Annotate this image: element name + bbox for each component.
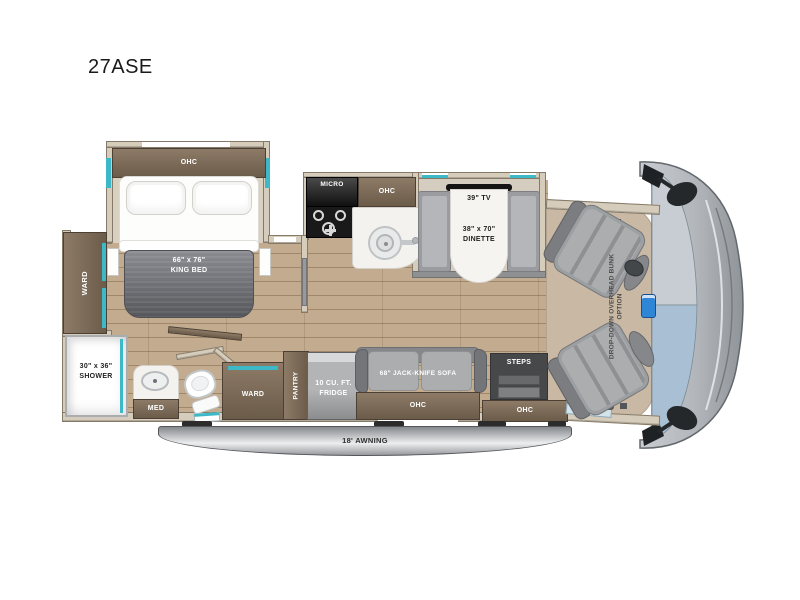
floorplan-canvas: OHC 66" x 76" KING BED WARD 30" x 36" SH…: [0, 0, 800, 600]
dinette-name-text: DINETTE: [463, 235, 495, 245]
nightstand-left: [107, 248, 119, 276]
entry-ward-label: WARD: [222, 390, 284, 400]
pantry-label: PANTRY: [284, 352, 308, 419]
galley-ohc-cabinet: OHC: [358, 177, 416, 207]
bed-type-text: KING BED: [171, 266, 208, 276]
sofa-label: 68" JACK-KNIFE SOFA: [360, 369, 476, 379]
fridge-line2-text: FRIDGE: [319, 389, 347, 399]
med-label: MED: [134, 400, 178, 418]
bed-size-text: 66" x 76": [173, 256, 206, 266]
ward-door-accent-1: [102, 243, 106, 281]
king-bed-label: 66" x 76" KING BED: [124, 254, 254, 278]
nightstand-right: [259, 248, 271, 276]
bench-left-cushion: [422, 196, 447, 267]
galley-sink-drain: [384, 242, 388, 246]
ward-door-accent-2: [102, 288, 106, 328]
pantry-text: PANTRY: [291, 372, 300, 400]
pantry: PANTRY: [283, 351, 309, 420]
burner-1-icon: [313, 210, 324, 221]
fridge-line1-text: 10 CU. FT.: [315, 379, 351, 389]
entry-ohc-label: OHC: [483, 401, 567, 421]
bath-sink-drain: [153, 379, 157, 383]
bunk-option-note: DROP-DOWN OVERHEAD BUNK OPTION: [557, 246, 677, 366]
bunk-option-text: DROP-DOWN OVERHEAD BUNK OPTION: [609, 246, 626, 366]
burner-cross-h: [325, 229, 336, 232]
shower-text: SHOWER: [79, 372, 112, 382]
bed-slideout-window-top: [142, 142, 230, 147]
shower-size-text: 30" x 36": [80, 362, 113, 372]
tv-label: 39" TV: [446, 194, 512, 204]
microwave: MICRO: [306, 177, 358, 207]
pillow-right: [192, 181, 252, 215]
bedroom-ohc-cabinet: OHC: [112, 148, 266, 178]
pocket-door: [302, 258, 307, 306]
burner-3-icon: [322, 222, 335, 235]
entry-ohc-cabinet: OHC: [482, 400, 568, 422]
entry-ward-accent: [228, 366, 278, 370]
sofa-ohc-cabinet: OHC: [356, 392, 480, 420]
dinette-label: 38" x 70" DINETTE: [452, 222, 506, 248]
bedroom-ward-label: WARD: [64, 233, 106, 333]
med-cabinet: MED: [133, 399, 179, 419]
step-1: [498, 375, 540, 385]
top-wall-mid-window: [274, 237, 296, 242]
pillow-left: [126, 181, 186, 215]
dinette-window-left: [422, 173, 448, 178]
floorplan-page: 27ASE: [0, 0, 800, 600]
bed-window-left: [106, 158, 111, 188]
galley-ohc-label: OHC: [359, 178, 415, 206]
burner-2-icon: [335, 210, 346, 221]
bedroom-ohc-label: OHC: [113, 149, 265, 177]
fridge-label: 10 CU. FT. FRIDGE: [309, 378, 358, 400]
bedroom-ward-text: WARD: [80, 271, 91, 295]
awning-label: 18' AWNING: [159, 427, 571, 455]
sofa-ohc-label: OHC: [357, 393, 479, 419]
shower-label: 30" x 36" SHOWER: [67, 362, 125, 382]
dinette-size-text: 38" x 70": [463, 225, 496, 235]
step-2: [498, 387, 540, 398]
awning: 18' AWNING: [158, 426, 572, 456]
bedroom-wardrobe: WARD: [63, 232, 107, 334]
dinette-window-right: [510, 173, 536, 178]
bench-right-cushion: [511, 196, 536, 267]
micro-label: MICRO: [307, 178, 357, 192]
